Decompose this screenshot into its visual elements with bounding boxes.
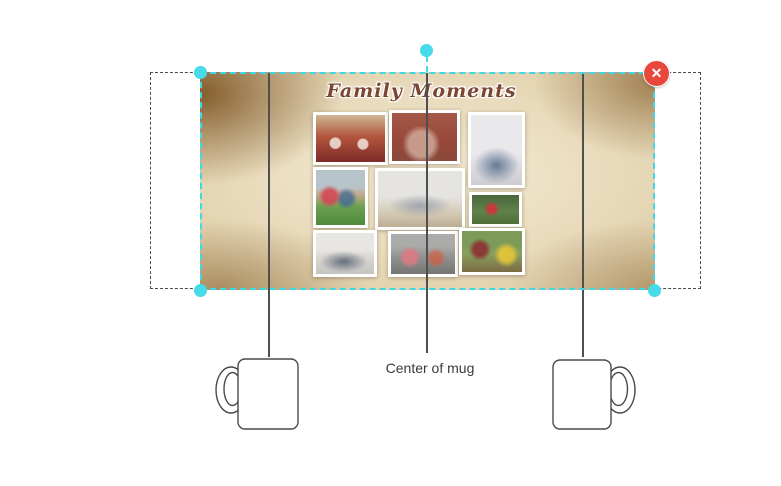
rotation-handle-connector	[426, 56, 428, 72]
photo-family-studio-tall	[468, 112, 525, 188]
photo-family-gray-backdrop	[388, 231, 458, 277]
mug-outline-right	[548, 353, 640, 435]
photo-family-seated-wall	[313, 230, 377, 277]
rotation-handle[interactable]	[420, 44, 433, 57]
guide-line-right-mug	[582, 73, 584, 357]
close-icon: ✕	[651, 65, 663, 82]
guide-line-left-mug	[268, 73, 270, 357]
photo-wedding-couple	[313, 112, 388, 165]
design-title: Family Moments	[200, 80, 643, 102]
photo-family-outdoors-green	[459, 228, 525, 275]
photo-family-on-grass	[313, 167, 368, 228]
photo-family-brick-wall	[389, 110, 460, 164]
photo-family-on-sofa	[375, 168, 465, 230]
delete-design-button[interactable]: ✕	[643, 60, 670, 87]
resize-handle-top-left[interactable]	[194, 66, 207, 79]
resize-handle-bottom-left[interactable]	[194, 284, 207, 297]
photo-couple-in-park	[469, 192, 522, 227]
mug-outline-left	[214, 353, 304, 435]
center-of-mug-label: Center of mug	[369, 360, 491, 376]
resize-handle-bottom-right[interactable]	[648, 284, 661, 297]
mug-designer-canvas: Family Moments ✕ Center of mug	[0, 0, 781, 486]
guide-line-center-of-mug	[426, 73, 428, 353]
